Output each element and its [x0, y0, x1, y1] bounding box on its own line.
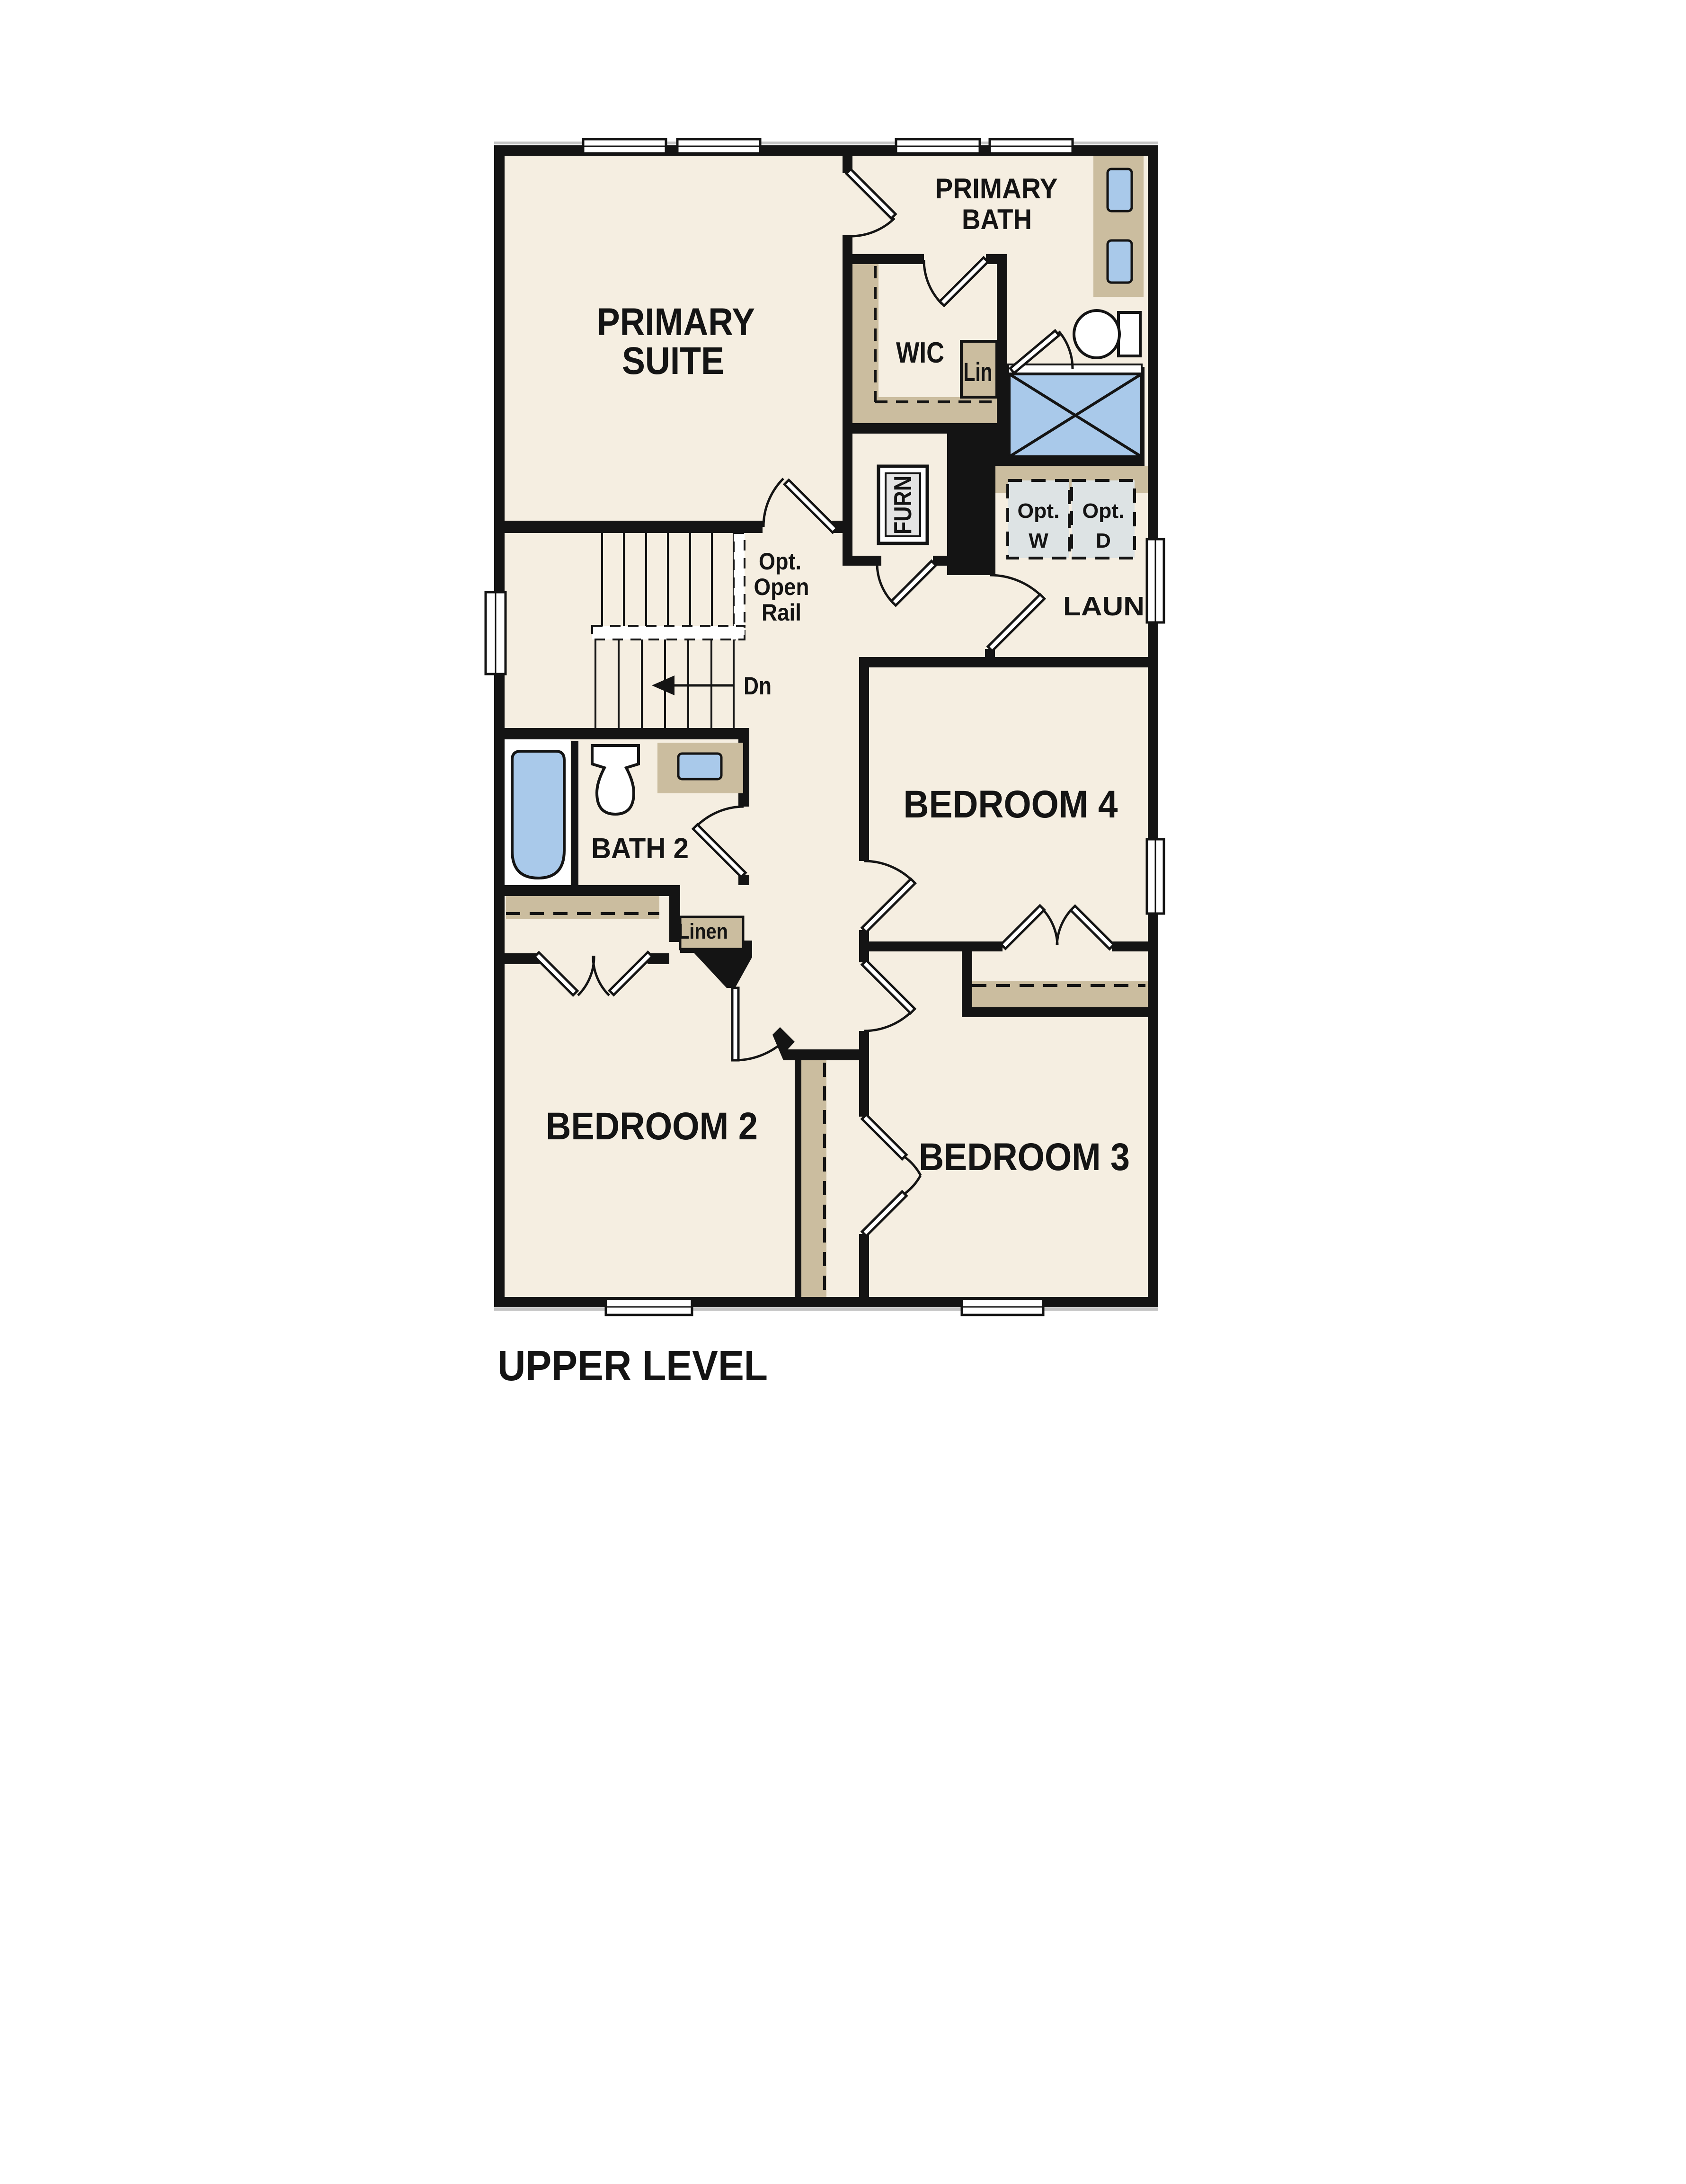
svg-text:BEDROOM 3: BEDROOM 3 [919, 1136, 1130, 1179]
svg-text:Dn: Dn [744, 672, 772, 700]
svg-text:Open: Open [754, 574, 809, 600]
svg-text:SUITE: SUITE [622, 339, 724, 382]
svg-text:Lin: Lin [964, 357, 993, 387]
svg-text:Opt.: Opt. [1018, 499, 1060, 523]
svg-text:Opt.: Opt. [759, 548, 801, 575]
svg-text:W: W [1029, 529, 1048, 552]
svg-text:D: D [1096, 529, 1111, 552]
svg-text:BATH: BATH [962, 204, 1032, 235]
svg-text:Opt.: Opt. [1083, 499, 1125, 523]
svg-text:BEDROOM 4: BEDROOM 4 [904, 783, 1118, 826]
svg-text:BEDROOM 2: BEDROOM 2 [546, 1105, 758, 1148]
svg-text:BATH 2: BATH 2 [591, 832, 689, 864]
svg-text:Rail: Rail [762, 599, 801, 626]
svg-text:PRIMARY: PRIMARY [935, 173, 1058, 204]
svg-text:FURN: FURN [889, 476, 917, 534]
svg-text:UPPER LEVEL: UPPER LEVEL [497, 1342, 768, 1390]
svg-text:LAUN: LAUN [1063, 591, 1145, 621]
svg-text:WIC: WIC [896, 337, 944, 369]
svg-text:Linen: Linen [678, 919, 728, 943]
svg-text:PRIMARY: PRIMARY [597, 301, 755, 344]
